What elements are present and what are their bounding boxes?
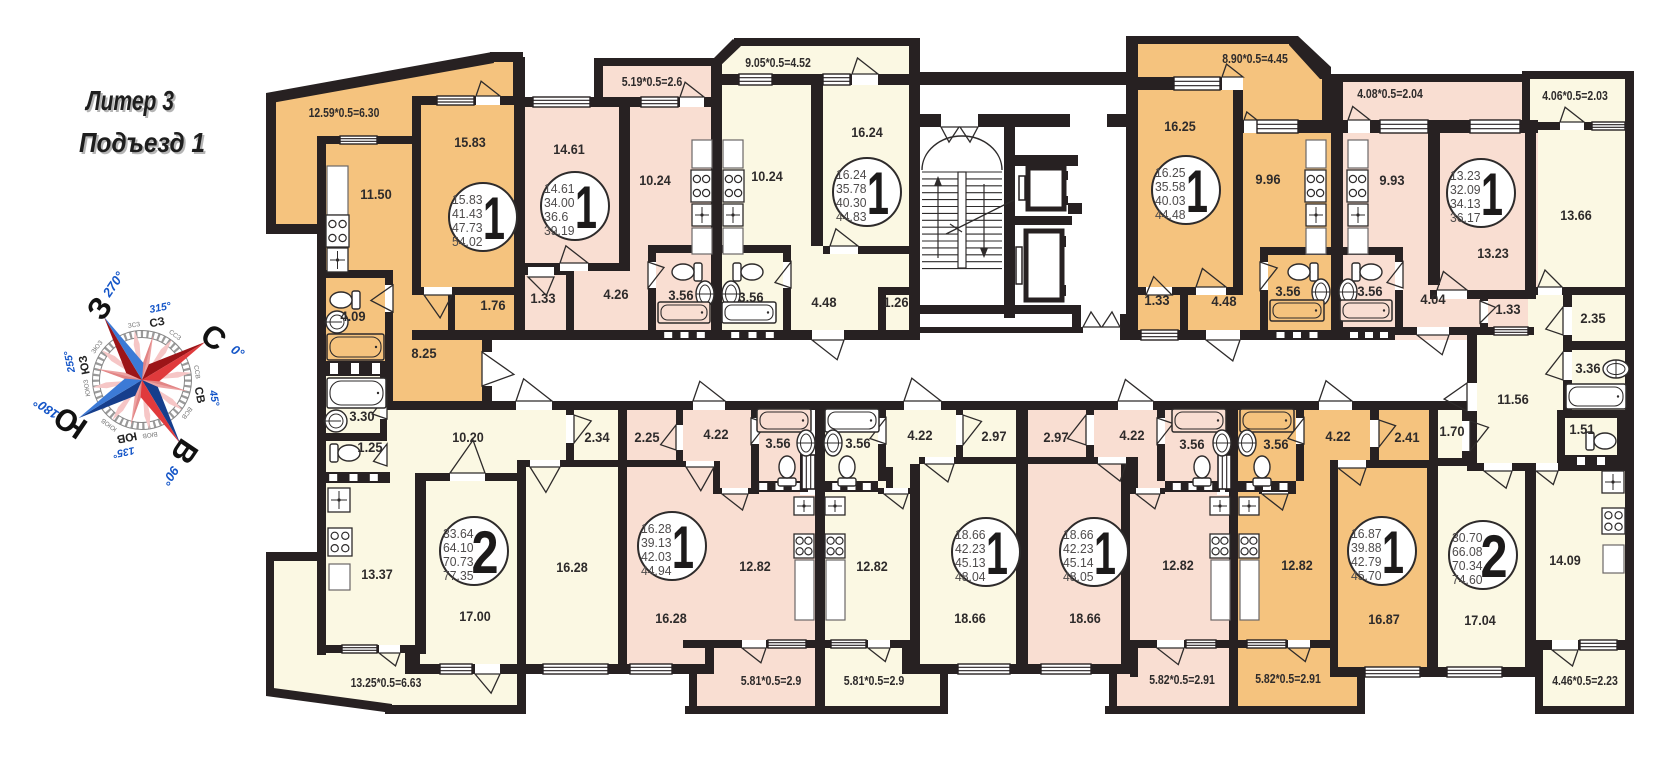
svg-text:48.05: 48.05 xyxy=(1063,570,1094,584)
svg-text:13.37: 13.37 xyxy=(361,567,393,582)
svg-text:2.34: 2.34 xyxy=(584,430,610,445)
svg-text:1.70: 1.70 xyxy=(1439,424,1464,439)
svg-text:39.19: 39.19 xyxy=(544,224,575,238)
svg-text:1: 1 xyxy=(867,160,889,227)
svg-text:1.25: 1.25 xyxy=(357,440,383,455)
svg-text:1: 1 xyxy=(1186,158,1208,225)
svg-text:45.70: 45.70 xyxy=(1351,569,1382,583)
svg-text:255°: 255° xyxy=(62,349,78,374)
svg-text:3.56: 3.56 xyxy=(668,288,694,303)
svg-text:42.23: 42.23 xyxy=(1063,542,1094,556)
svg-text:70.34: 70.34 xyxy=(1452,559,1483,573)
svg-text:4.04: 4.04 xyxy=(1420,292,1446,307)
svg-text:40.30: 40.30 xyxy=(836,196,867,210)
svg-text:14.61: 14.61 xyxy=(544,182,575,196)
svg-text:18.66: 18.66 xyxy=(1063,528,1094,542)
svg-text:14.09: 14.09 xyxy=(1549,553,1581,568)
svg-text:10.20: 10.20 xyxy=(452,430,484,445)
svg-text:35.78: 35.78 xyxy=(836,182,867,196)
svg-text:ЮВ: ЮВ xyxy=(116,429,138,445)
svg-text:16.24: 16.24 xyxy=(851,125,883,140)
svg-text:4.22: 4.22 xyxy=(1119,428,1144,443)
svg-text:14.61: 14.61 xyxy=(553,142,585,157)
svg-text:30.70: 30.70 xyxy=(1452,531,1483,545)
svg-text:4.48: 4.48 xyxy=(1211,294,1237,309)
svg-text:70.73: 70.73 xyxy=(443,555,474,569)
svg-text:47.73: 47.73 xyxy=(452,221,483,235)
svg-text:32.09: 32.09 xyxy=(1450,183,1481,197)
svg-text:33.64: 33.64 xyxy=(443,527,474,541)
svg-text:1.76: 1.76 xyxy=(480,298,506,313)
svg-text:1: 1 xyxy=(986,520,1008,587)
svg-text:3.56: 3.56 xyxy=(765,436,791,451)
svg-text:54.02: 54.02 xyxy=(452,235,483,249)
svg-text:90°: 90° xyxy=(158,463,182,488)
svg-text:СВ: СВ xyxy=(192,386,207,405)
svg-text:45°: 45° xyxy=(206,388,221,408)
svg-text:64.10: 64.10 xyxy=(443,541,474,555)
svg-text:3.56: 3.56 xyxy=(1179,437,1205,452)
svg-text:13.23: 13.23 xyxy=(1450,169,1481,183)
svg-text:5.82*0.5=2.91: 5.82*0.5=2.91 xyxy=(1255,671,1321,686)
svg-text:36.17: 36.17 xyxy=(1450,211,1481,225)
svg-text:12.82: 12.82 xyxy=(739,559,771,574)
svg-text:4.48: 4.48 xyxy=(811,295,837,310)
svg-text:9.93: 9.93 xyxy=(1379,173,1405,188)
svg-text:34.13: 34.13 xyxy=(1450,197,1481,211)
svg-text:ССВ: ССВ xyxy=(192,365,201,380)
svg-text:8.25: 8.25 xyxy=(411,346,437,361)
svg-text:4.26: 4.26 xyxy=(603,287,629,302)
svg-text:1.33: 1.33 xyxy=(1144,293,1170,308)
svg-text:3.56: 3.56 xyxy=(1275,284,1301,299)
svg-text:5.19*0.5=2.6: 5.19*0.5=2.6 xyxy=(622,74,683,89)
svg-text:4.46*0.5=2.23: 4.46*0.5=2.23 xyxy=(1552,673,1618,688)
svg-text:2.41: 2.41 xyxy=(1394,430,1420,445)
svg-text:10.24: 10.24 xyxy=(751,169,783,184)
svg-text:39.88: 39.88 xyxy=(1351,541,1382,555)
svg-text:4.22: 4.22 xyxy=(907,428,932,443)
svg-text:42.23: 42.23 xyxy=(955,542,986,556)
svg-text:44.48: 44.48 xyxy=(1155,208,1186,222)
svg-text:39.13: 39.13 xyxy=(641,536,672,550)
svg-text:2.25: 2.25 xyxy=(634,430,660,445)
svg-text:135°: 135° xyxy=(111,444,135,460)
svg-text:С: С xyxy=(195,317,233,359)
svg-text:42.79: 42.79 xyxy=(1351,555,1382,569)
svg-text:3.56: 3.56 xyxy=(1357,284,1383,299)
svg-text:1: 1 xyxy=(483,185,505,252)
svg-text:315°: 315° xyxy=(148,300,172,316)
svg-text:66.08: 66.08 xyxy=(1452,545,1483,559)
svg-text:16.25: 16.25 xyxy=(1164,119,1196,134)
svg-text:18.66: 18.66 xyxy=(1069,611,1101,626)
svg-text:1.33: 1.33 xyxy=(1495,302,1521,317)
svg-text:11.56: 11.56 xyxy=(1497,392,1529,407)
svg-text:СЗ: СЗ xyxy=(149,316,166,331)
svg-text:48.04: 48.04 xyxy=(955,570,986,584)
svg-text:4.09: 4.09 xyxy=(340,309,365,324)
svg-text:1: 1 xyxy=(575,174,597,241)
svg-text:1.33: 1.33 xyxy=(530,291,556,306)
svg-text:12.82: 12.82 xyxy=(1162,558,1194,573)
svg-text:41.43: 41.43 xyxy=(452,207,483,221)
svg-text:42.03: 42.03 xyxy=(641,550,672,564)
svg-text:13.23: 13.23 xyxy=(1477,246,1509,261)
svg-text:9.05*0.5=4.52: 9.05*0.5=4.52 xyxy=(745,55,811,70)
svg-text:40.03: 40.03 xyxy=(1155,194,1186,208)
svg-text:12.82: 12.82 xyxy=(856,559,888,574)
svg-text:16.28: 16.28 xyxy=(655,611,687,626)
svg-text:13.25*0.5=6.63: 13.25*0.5=6.63 xyxy=(351,675,422,690)
svg-text:ЗСЗ: ЗСЗ xyxy=(127,321,140,330)
svg-text:17.04: 17.04 xyxy=(1464,613,1496,628)
svg-text:44.94: 44.94 xyxy=(641,564,672,578)
svg-text:4.06*0.5=2.03: 4.06*0.5=2.03 xyxy=(1542,88,1608,103)
svg-text:9.96: 9.96 xyxy=(1255,172,1281,187)
svg-text:45.14: 45.14 xyxy=(1063,556,1094,570)
svg-text:3.56: 3.56 xyxy=(845,436,871,451)
svg-text:2.97: 2.97 xyxy=(981,429,1006,444)
svg-text:2: 2 xyxy=(472,519,499,586)
svg-text:10.24: 10.24 xyxy=(639,173,671,188)
svg-text:2.97: 2.97 xyxy=(1043,430,1068,445)
svg-text:1.26: 1.26 xyxy=(883,295,909,310)
svg-text:18.66: 18.66 xyxy=(955,528,986,542)
svg-text:36.6: 36.6 xyxy=(544,210,568,224)
svg-text:2.35: 2.35 xyxy=(1580,311,1606,326)
svg-text:ВЮВ: ВЮВ xyxy=(142,430,158,439)
svg-text:35.58: 35.58 xyxy=(1155,180,1186,194)
svg-text:5.82*0.5=2.91: 5.82*0.5=2.91 xyxy=(1149,672,1215,687)
svg-text:18.66: 18.66 xyxy=(954,611,986,626)
svg-text:16.87: 16.87 xyxy=(1351,527,1382,541)
svg-text:12.59*0.5=6.30: 12.59*0.5=6.30 xyxy=(309,105,380,120)
svg-text:15.83: 15.83 xyxy=(452,193,483,207)
svg-text:77.35: 77.35 xyxy=(443,569,474,583)
svg-text:16.28: 16.28 xyxy=(641,522,672,536)
svg-text:17.00: 17.00 xyxy=(459,609,491,624)
svg-text:3.30: 3.30 xyxy=(349,409,374,424)
svg-text:15.83: 15.83 xyxy=(454,135,486,150)
svg-text:1: 1 xyxy=(1382,519,1404,586)
svg-text:3.56: 3.56 xyxy=(738,290,764,305)
svg-text:Литер 3: Литер 3 xyxy=(84,85,174,116)
svg-text:0°: 0° xyxy=(228,342,247,362)
svg-text:5.81*0.5=2.9: 5.81*0.5=2.9 xyxy=(741,673,802,688)
svg-text:ЮЮЗ: ЮЮЗ xyxy=(83,379,92,397)
svg-text:180°: 180° xyxy=(30,394,61,422)
svg-text:1: 1 xyxy=(672,514,694,581)
svg-text:13.66: 13.66 xyxy=(1560,208,1592,223)
svg-text:3.56: 3.56 xyxy=(1263,437,1289,452)
svg-text:1: 1 xyxy=(1481,161,1503,228)
svg-text:16.25: 16.25 xyxy=(1155,166,1186,180)
svg-text:44.83: 44.83 xyxy=(836,210,867,224)
svg-text:4.08*0.5=2.04: 4.08*0.5=2.04 xyxy=(1357,86,1423,101)
svg-text:Подъезд 1: Подъезд 1 xyxy=(79,127,205,158)
svg-text:3.36: 3.36 xyxy=(1575,361,1601,376)
svg-text:16.24: 16.24 xyxy=(836,168,867,182)
svg-text:45.13: 45.13 xyxy=(955,556,986,570)
svg-text:1.51: 1.51 xyxy=(1569,422,1595,437)
svg-text:11.50: 11.50 xyxy=(360,187,392,202)
svg-text:5.81*0.5=2.9: 5.81*0.5=2.9 xyxy=(844,673,905,688)
svg-text:2: 2 xyxy=(1481,523,1508,590)
svg-text:34.00: 34.00 xyxy=(544,196,575,210)
svg-text:1: 1 xyxy=(1094,520,1116,587)
svg-text:16.87: 16.87 xyxy=(1368,612,1400,627)
svg-text:12.82: 12.82 xyxy=(1281,558,1313,573)
svg-text:ЮЗ: ЮЗ xyxy=(77,354,92,375)
svg-text:270°: 270° xyxy=(99,268,127,300)
svg-text:4.22: 4.22 xyxy=(703,427,728,442)
svg-text:8.90*0.5=4.45: 8.90*0.5=4.45 xyxy=(1222,51,1288,66)
svg-text:4.22: 4.22 xyxy=(1325,429,1350,444)
svg-text:74.60: 74.60 xyxy=(1452,573,1483,587)
svg-text:16.28: 16.28 xyxy=(556,560,588,575)
